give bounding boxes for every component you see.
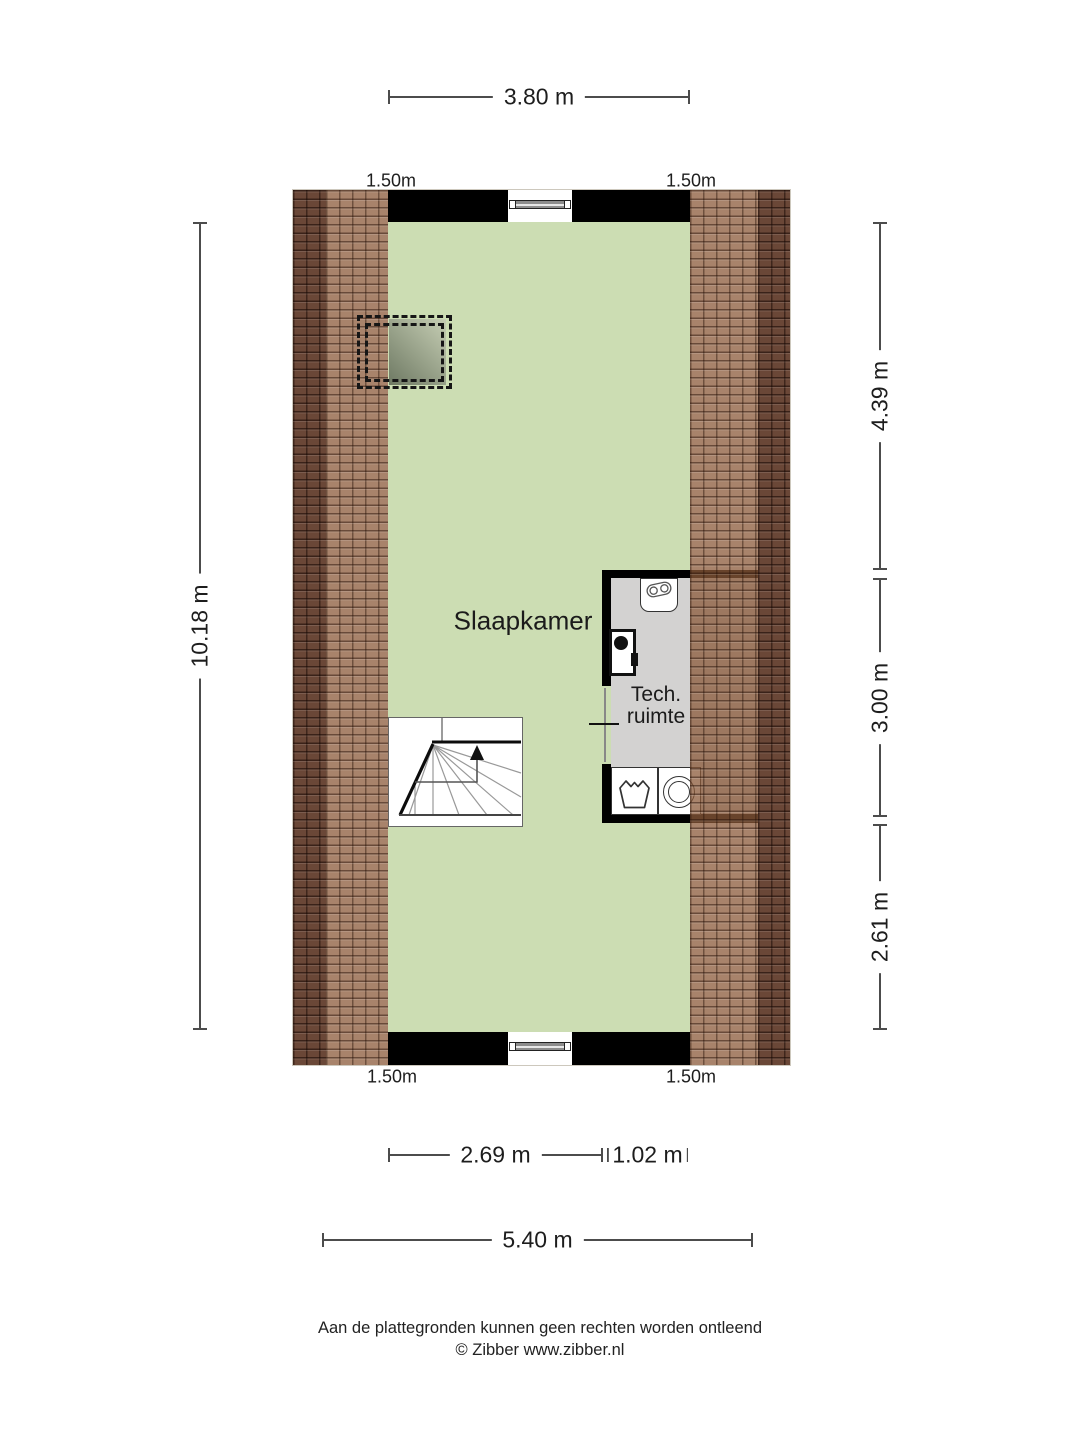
wall-top-right xyxy=(572,190,690,222)
dimension-bottom-right-inner-label: 1.02 m xyxy=(608,1142,686,1167)
dimension-bottom-left-inner-label: 2.69 m xyxy=(449,1142,541,1167)
dimension-top-width-label: 3.80 m xyxy=(493,84,585,109)
room-label-tech-line1: Tech. xyxy=(627,684,685,706)
room-label-tech-line2: ruimte xyxy=(627,706,685,728)
roof-left-dark-strip xyxy=(293,190,326,1065)
window-top-icon xyxy=(512,200,568,209)
laundry-tub-icon xyxy=(617,779,652,810)
dimension-bottom-total: 5.40 m xyxy=(322,1233,753,1247)
dimension-left-height: 10.18 m xyxy=(193,222,207,1030)
dimension-right-lower-label: 2.61 m xyxy=(867,881,892,973)
footer-line1: Aan de plattegronden kunnen geen rechten… xyxy=(0,1317,1080,1339)
window-bottom-block-left xyxy=(509,1042,516,1051)
roof-right-dark-strip xyxy=(758,190,790,1065)
floor-plan-image: Slaapkamer Tech. ruimte 1.50m 1.50m 1.50… xyxy=(0,0,1080,1440)
window-bottom-block-right xyxy=(564,1042,571,1051)
footer-line2: © Zibber www.zibber.nl xyxy=(0,1339,1080,1361)
dimension-bottom-right-inner: 1.02 m xyxy=(607,1148,688,1162)
dimension-top-width: 3.80 m xyxy=(388,90,690,104)
dimension-right-middle: 3.00 m xyxy=(873,578,887,817)
headroom-label-bottom-left: 1.50m xyxy=(367,1067,417,1088)
dimension-right-upper: 4.39 m xyxy=(873,222,887,570)
window-bottom-icon xyxy=(512,1042,568,1051)
headroom-label-top-left: 1.50m xyxy=(366,171,416,192)
headroom-label-bottom-right: 1.50m xyxy=(666,1067,716,1088)
room-label-tech: Tech. ruimte xyxy=(627,684,685,728)
window-top-block-left xyxy=(509,200,516,209)
footer-disclaimer: Aan de plattegronden kunnen geen rechten… xyxy=(0,1317,1080,1361)
wall-top-left xyxy=(388,190,508,222)
skylight-inner-icon xyxy=(365,323,444,382)
room-label-bedroom: Slaapkamer xyxy=(454,606,593,637)
ventilation-dot-icon xyxy=(614,636,628,650)
headroom-label-top-right: 1.50m xyxy=(666,171,716,192)
wall-bottom-right xyxy=(572,1032,690,1065)
ventilation-tab-icon xyxy=(631,653,638,666)
wall-bottom-left xyxy=(388,1032,508,1065)
dimension-right-lower: 2.61 m xyxy=(873,824,887,1030)
tech-door-tick xyxy=(589,723,619,725)
dryer-drum-inner-icon xyxy=(668,781,690,803)
dimension-right-upper-label: 4.39 m xyxy=(867,350,892,442)
dimension-left-height-label: 10.18 m xyxy=(187,573,212,678)
dimension-bottom-total-label: 5.40 m xyxy=(491,1227,583,1252)
roof-right-light-strip xyxy=(690,190,758,1065)
stairs-up-arrow-icon xyxy=(470,745,484,760)
stairs-treads xyxy=(388,717,523,827)
dimension-bottom-left-inner: 2.69 m xyxy=(388,1148,603,1162)
dimension-right-middle-label: 3.00 m xyxy=(867,651,892,743)
tech-wall-left-lower xyxy=(602,764,611,823)
boiler-glyph-icon xyxy=(645,581,673,598)
window-top-block-right xyxy=(564,200,571,209)
